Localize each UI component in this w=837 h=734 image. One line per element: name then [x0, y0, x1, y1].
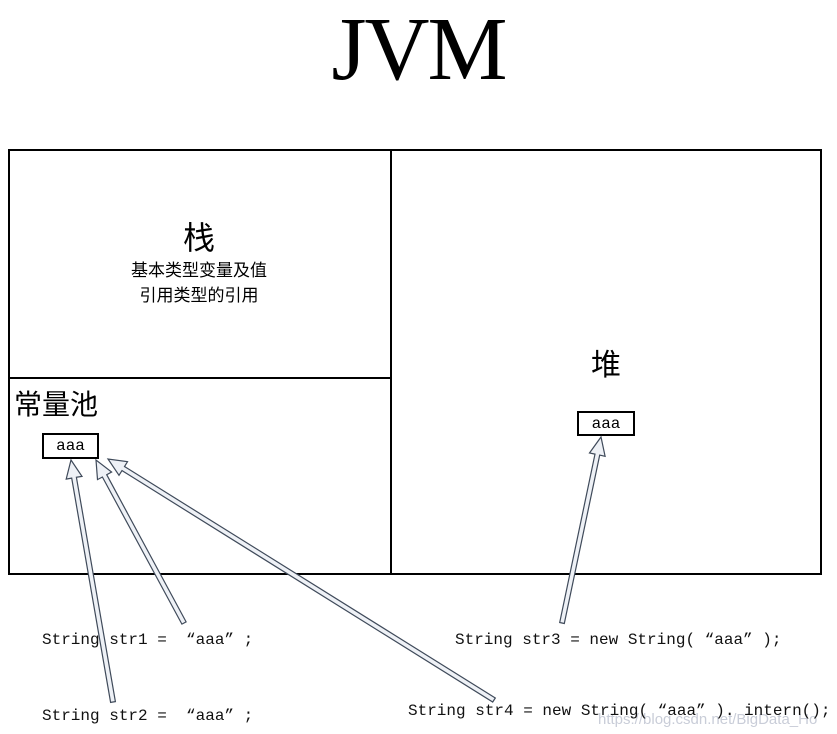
heap-value: aaa [592, 415, 621, 433]
stack-description-line2: 引用类型的引用 [8, 283, 390, 308]
stack-region: 栈 基本类型变量及值 引用类型的引用 [8, 218, 390, 308]
code-line-str4: String str4 = new String( “aaa” ). inter… [408, 702, 830, 720]
heap-label: 堆 [390, 340, 822, 384]
jvm-memory-diagram: JVM 栈 基本类型变量及值 引用类型的引用 常量池 aaa 堆 aaa Str… [0, 0, 837, 734]
constant-pool-label: 常量池 [14, 383, 98, 423]
constant-pool-value-box: aaa [42, 433, 99, 459]
heap-value-box: aaa [577, 411, 635, 436]
code-line-str2: String str2 = “aaa” ; [42, 707, 253, 725]
page-title: JVM [0, 0, 837, 100]
stack-description-line1: 基本类型变量及值 [8, 258, 390, 283]
code-line-str1: String str1 = “aaa” ; [42, 631, 253, 649]
constant-pool-value: aaa [56, 437, 85, 455]
code-line-str3: String str3 = new String( “aaa” ); [455, 631, 781, 649]
stack-label: 栈 [8, 218, 390, 258]
stack-pool-divider [8, 377, 390, 379]
